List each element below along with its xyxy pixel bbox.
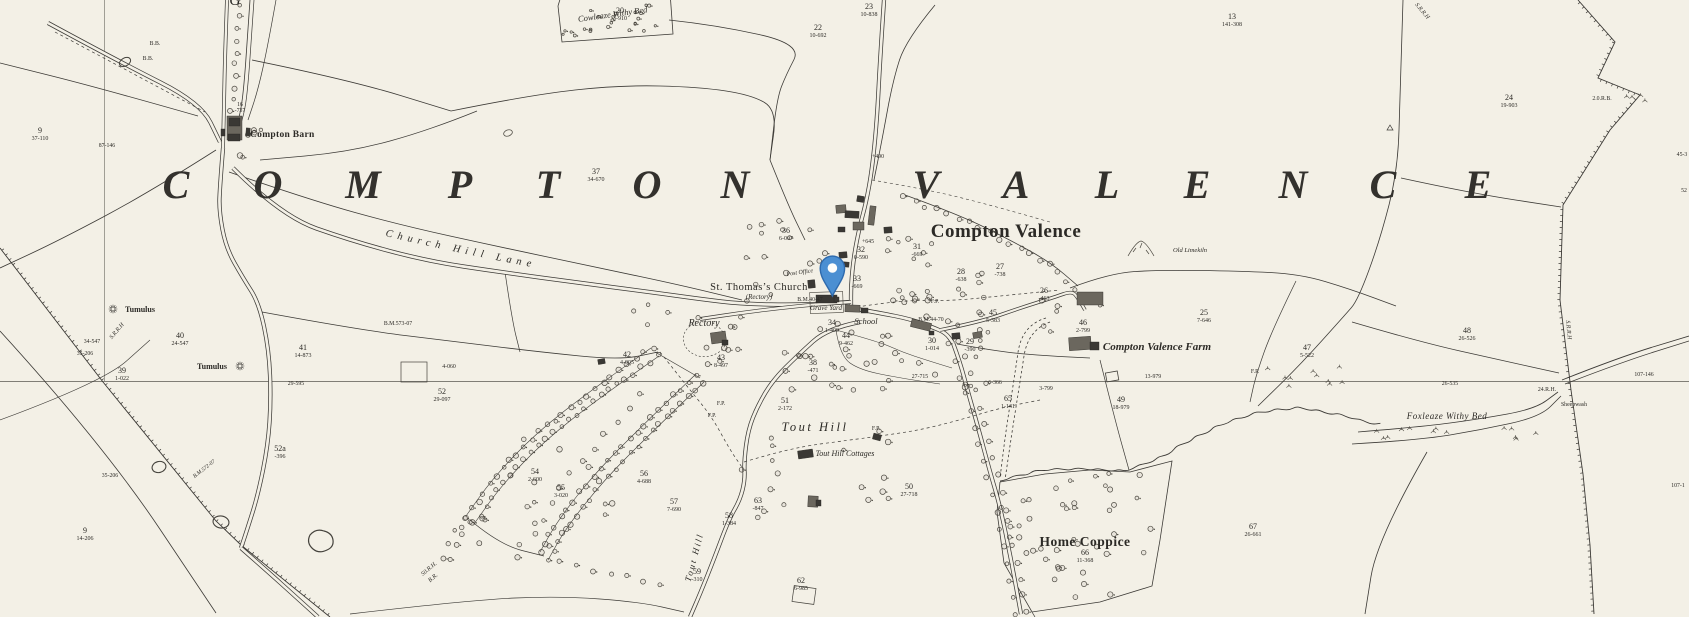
svg-text:C: C xyxy=(1370,162,1398,207)
svg-text:141-308: 141-308 xyxy=(1222,22,1242,28)
svg-text:N: N xyxy=(720,162,752,207)
svg-text:55: 55 xyxy=(557,483,565,492)
svg-text:Compton Valence Farm: Compton Valence Farm xyxy=(1103,341,1212,353)
svg-text:18-979: 18-979 xyxy=(1113,405,1130,411)
svg-text:13: 13 xyxy=(1228,12,1236,21)
svg-text:-737: -737 xyxy=(235,108,246,114)
svg-text:6-007: 6-007 xyxy=(779,236,793,242)
svg-text:2-600: 2-600 xyxy=(528,477,542,483)
svg-text:49: 49 xyxy=(1117,395,1125,404)
svg-text:67: 67 xyxy=(1249,522,1257,531)
svg-text:C: C xyxy=(163,162,191,207)
svg-text:7-690: 7-690 xyxy=(667,507,681,513)
svg-text:Old Limekiln: Old Limekiln xyxy=(1173,247,1207,254)
svg-text:B.B.: B.B. xyxy=(143,56,154,62)
svg-text:-669: -669 xyxy=(912,252,923,258)
svg-text:42: 42 xyxy=(623,350,631,359)
svg-text:1-014: 1-014 xyxy=(925,346,939,352)
svg-text:11-368: 11-368 xyxy=(1077,558,1094,564)
svg-text:Home Coppice: Home Coppice xyxy=(1039,534,1130,549)
svg-text:39: 39 xyxy=(118,366,126,375)
svg-text:46: 46 xyxy=(1079,318,1087,327)
svg-text:26: 26 xyxy=(1040,286,1048,295)
svg-text:-738: -738 xyxy=(995,272,1006,278)
svg-text:1-022: 1-022 xyxy=(115,376,129,382)
svg-text:54: 54 xyxy=(531,467,539,476)
svg-text:B.B.: B.B. xyxy=(150,41,161,47)
svg-text:59: 59 xyxy=(693,567,701,576)
svg-text:13-979: 13-979 xyxy=(1145,374,1162,380)
svg-text:29: 29 xyxy=(966,337,974,346)
svg-text:35-206: 35-206 xyxy=(77,351,94,357)
svg-text:107-146: 107-146 xyxy=(1634,372,1653,378)
svg-text:O: O xyxy=(254,162,283,207)
svg-text:3-020: 3-020 xyxy=(554,493,568,499)
svg-text:23: 23 xyxy=(865,2,873,11)
svg-text:34-670: 34-670 xyxy=(588,177,605,183)
svg-text:St. Thomas’s Church: St. Thomas’s Church xyxy=(710,282,808,293)
svg-text:58: 58 xyxy=(725,511,733,520)
svg-text:E: E xyxy=(1464,162,1492,207)
svg-text:29-097: 29-097 xyxy=(434,397,451,403)
svg-text:O: O xyxy=(633,162,662,207)
svg-text:45-3: 45-3 xyxy=(1677,152,1688,158)
svg-text:29-595: 29-595 xyxy=(288,381,305,387)
svg-text:28: 28 xyxy=(957,267,965,276)
svg-text:37: 37 xyxy=(592,167,600,176)
svg-text:14-873: 14-873 xyxy=(295,353,312,359)
svg-text:9-462: 9-462 xyxy=(839,341,853,347)
svg-text:Compton Barn: Compton Barn xyxy=(250,130,315,140)
svg-text:26-661: 26-661 xyxy=(1245,532,1262,538)
svg-text:24-547: 24-547 xyxy=(172,341,189,347)
svg-text:1-384: 1-384 xyxy=(722,521,736,527)
svg-text:51: 51 xyxy=(781,396,789,405)
svg-text:6-985: 6-985 xyxy=(794,586,808,592)
svg-text:F.P.: F.P. xyxy=(1251,369,1260,375)
svg-text:33: 33 xyxy=(853,274,861,283)
svg-text:40: 40 xyxy=(176,331,184,340)
svg-text:Tout Hill Cottages: Tout Hill Cottages xyxy=(816,449,875,458)
svg-text:24.R.H.: 24.R.H. xyxy=(1538,387,1557,393)
svg-text:32: 32 xyxy=(857,245,865,254)
svg-text:N: N xyxy=(1278,162,1310,207)
svg-text:4-688: 4-688 xyxy=(637,479,651,485)
svg-text:2-172: 2-172 xyxy=(778,406,792,412)
svg-text:65: 65 xyxy=(1004,394,1012,403)
svg-text:-390: -390 xyxy=(965,347,976,353)
svg-text:L: L xyxy=(1094,162,1119,207)
svg-text:63: 63 xyxy=(754,496,762,505)
svg-text:3-910: 3-910 xyxy=(613,16,627,22)
svg-text:(Rectory): (Rectory) xyxy=(746,293,773,301)
svg-text:14-206: 14-206 xyxy=(77,536,94,542)
svg-text:37-110: 37-110 xyxy=(32,136,49,142)
svg-text:27: 27 xyxy=(996,262,1004,271)
svg-text:-669: -669 xyxy=(852,284,863,290)
svg-text:4-005: 4-005 xyxy=(620,360,634,366)
svg-text:5-522: 5-522 xyxy=(1300,353,1314,359)
svg-text:31: 31 xyxy=(913,242,921,251)
svg-text:Tumulus: Tumulus xyxy=(125,305,155,314)
svg-text:52: 52 xyxy=(1681,188,1687,194)
svg-text:-310: -310 xyxy=(692,577,703,583)
svg-text:48: 48 xyxy=(1463,326,1471,335)
svg-text:27-715: 27-715 xyxy=(912,374,929,380)
svg-text:62: 62 xyxy=(797,576,805,585)
svg-text:B.M.40-47: B.M.40-47 xyxy=(797,297,823,303)
svg-text:107-1: 107-1 xyxy=(1671,483,1685,489)
svg-text:1-141: 1-141 xyxy=(1001,404,1015,410)
svg-text:-638: -638 xyxy=(956,277,967,283)
svg-text:A: A xyxy=(1000,162,1030,207)
svg-text:56: 56 xyxy=(640,469,648,478)
svg-text:0-590: 0-590 xyxy=(854,255,868,261)
svg-text:19-903: 19-903 xyxy=(1501,103,1518,109)
svg-text:T: T xyxy=(536,162,562,207)
svg-text:F.P.: F.P. xyxy=(931,299,940,305)
svg-text:34-547: 34-547 xyxy=(84,339,101,345)
svg-text:6-366: 6-366 xyxy=(988,380,1002,386)
svg-text:+645: +645 xyxy=(862,239,874,245)
svg-text:10-692: 10-692 xyxy=(810,33,827,39)
svg-text:41: 41 xyxy=(299,343,307,352)
svg-text:27-718: 27-718 xyxy=(901,492,918,498)
svg-text:Sheepwash: Sheepwash xyxy=(1561,402,1587,408)
svg-text:-471: -471 xyxy=(808,368,819,374)
svg-text:52: 52 xyxy=(438,387,446,396)
svg-text:20: 20 xyxy=(616,6,624,15)
svg-text:30: 30 xyxy=(928,336,936,345)
svg-text:3-799: 3-799 xyxy=(1039,386,1053,392)
svg-text:B.M.573-07: B.M.573-07 xyxy=(384,321,412,327)
svg-text:34: 34 xyxy=(828,318,836,327)
svg-text:Grave Yard: Grave Yard xyxy=(810,304,842,312)
svg-text:22: 22 xyxy=(814,23,822,32)
svg-text:-463: -463 xyxy=(1039,296,1050,302)
svg-text:47: 47 xyxy=(1303,343,1311,352)
svg-text:10-838: 10-838 xyxy=(861,12,878,18)
svg-text:38: 38 xyxy=(809,358,817,367)
svg-text:35-206: 35-206 xyxy=(102,473,119,479)
svg-text:44: 44 xyxy=(842,331,850,340)
svg-text:-847: -847 xyxy=(753,506,764,512)
svg-text:25: 25 xyxy=(1200,308,1208,317)
svg-text:24: 24 xyxy=(1505,93,1513,102)
svg-text:G: G xyxy=(229,0,241,9)
svg-text:8-497: 8-497 xyxy=(714,363,728,369)
svg-text:Foxleaze Withy Bed: Foxleaze Withy Bed xyxy=(1406,411,1487,421)
svg-text:26-526: 26-526 xyxy=(1459,336,1476,342)
svg-text:E: E xyxy=(1183,162,1211,207)
svg-text:87-146: 87-146 xyxy=(99,143,116,149)
svg-text:M: M xyxy=(344,162,382,207)
svg-text:Tumulus: Tumulus xyxy=(197,362,227,371)
svg-text:36: 36 xyxy=(782,226,790,235)
svg-text:B.M.44-70: B.M.44-70 xyxy=(918,317,944,323)
svg-text:1-409: 1-409 xyxy=(825,328,839,334)
svg-text:57: 57 xyxy=(670,497,678,506)
svg-text:2.0.R.B.: 2.0.R.B. xyxy=(1592,96,1612,102)
svg-text:50: 50 xyxy=(905,482,913,491)
svg-text:45: 45 xyxy=(989,308,997,317)
svg-text:2-799: 2-799 xyxy=(1076,328,1090,334)
svg-text:+490: +490 xyxy=(872,154,884,160)
svg-text:-396: -396 xyxy=(275,454,286,460)
svg-text:9: 9 xyxy=(38,126,42,135)
svg-text:F.P.: F.P. xyxy=(717,401,726,407)
svg-text:F.P.: F.P. xyxy=(872,426,881,432)
svg-text:Tout Hill: Tout Hill xyxy=(782,420,849,434)
svg-text:Compton Valence: Compton Valence xyxy=(931,221,1082,242)
svg-text:43: 43 xyxy=(717,353,725,362)
svg-text:9: 9 xyxy=(83,526,87,535)
svg-text:26-535: 26-535 xyxy=(1442,381,1459,387)
svg-text:5-383: 5-383 xyxy=(986,318,1000,324)
svg-text:4-060: 4-060 xyxy=(442,364,456,370)
svg-text:66: 66 xyxy=(1081,548,1089,557)
svg-text:52a: 52a xyxy=(274,444,286,453)
svg-text:V: V xyxy=(913,162,943,207)
svg-text:7-646: 7-646 xyxy=(1197,318,1211,324)
svg-text:P: P xyxy=(447,162,473,207)
svg-text:Rectory: Rectory xyxy=(687,318,720,329)
svg-text:School: School xyxy=(854,316,878,326)
svg-text:F.P.: F.P. xyxy=(708,413,717,419)
